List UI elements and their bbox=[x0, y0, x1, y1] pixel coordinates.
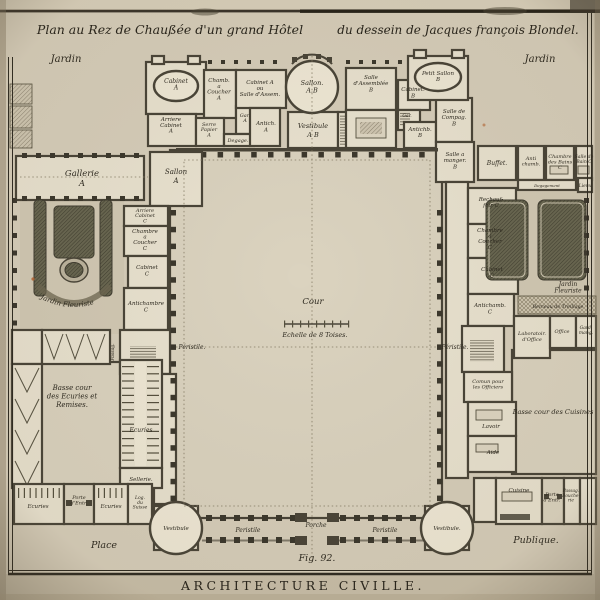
photo-artifacts bbox=[0, 0, 600, 600]
engraved-plate: Plan au Rez de Chaußée d'un grand Hôtel … bbox=[0, 0, 600, 600]
